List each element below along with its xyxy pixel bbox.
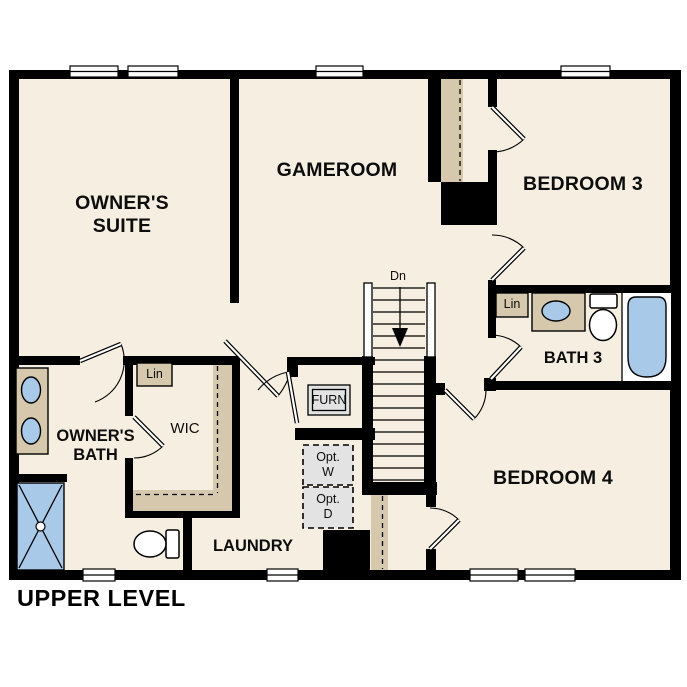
shower-drain [36,522,45,531]
floor-plan: OWNER'S SUITE GAMEROOM BEDROOM 3 BATH 3 … [0,0,687,687]
bedroom4-label: BEDROOM 4 [473,467,633,490]
furnace-label: FURN [308,393,350,408]
wic-label: WIC [160,420,210,438]
laundry-label: LAUNDRY [195,537,311,556]
wic-linen-label: Lin [137,367,172,382]
optional-dryer-label: Opt. D [303,492,353,522]
sink-basin [542,301,570,321]
owners-suite-label: OWNER'S SUITE [62,192,182,238]
toilet [134,530,179,558]
toilet [590,294,618,341]
bathtub [628,297,666,377]
optional-washer-label: Opt. W [303,450,353,480]
stairs-down-label: Dn [383,269,413,284]
bath3-label: BATH 3 [523,349,623,368]
sink-basin [22,377,41,403]
bedroom3-label: BEDROOM 3 [503,173,663,196]
floor-plan-drawing [0,0,687,687]
plan-title: UPPER LEVEL [17,585,186,612]
bath3-linen-label: Lin [496,297,528,312]
gameroom-label: GAMEROOM [257,159,417,182]
owners-bath-label: OWNER'S BATH [38,427,153,466]
